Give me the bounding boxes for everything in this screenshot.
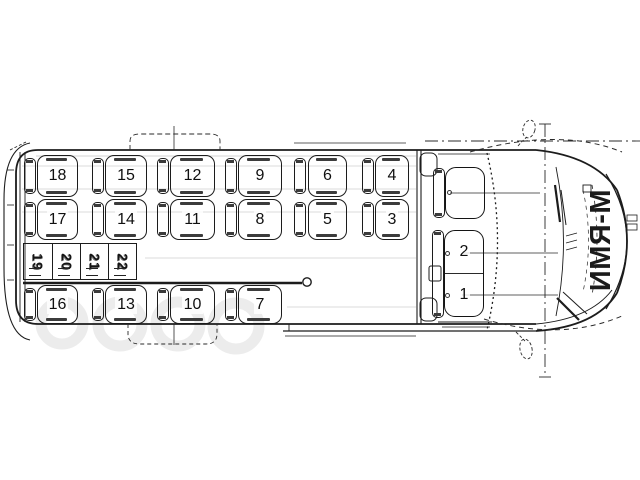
- seat-11-backrest: [157, 202, 169, 237]
- seat-1-marker: [445, 293, 450, 298]
- seat-15-backrest: [92, 158, 104, 194]
- brand-text: ИМЯ-М: [585, 189, 617, 291]
- vehicle-drawing: ИМЯ-М: [0, 0, 640, 480]
- seat-12-backrest: [157, 158, 169, 194]
- folding-seat-19: 19: [23, 243, 53, 280]
- fold-mechanism-icon: [29, 268, 41, 276]
- bus-seating-diagram: ИМЯ-М 18 15 12 9 6 4 17 14 11 8 5 3 19 2…: [0, 0, 640, 480]
- seat-12: 12: [170, 155, 215, 197]
- seat-13-backrest: [92, 288, 104, 321]
- seat-5-backrest: [294, 202, 306, 237]
- seat-8-backrest: [225, 202, 237, 237]
- seat-4: 4: [375, 155, 409, 197]
- folding-seat-22: 22: [108, 243, 137, 280]
- floor-lines: [22, 156, 416, 307]
- seat-16: 16: [37, 285, 78, 324]
- seat-3: 3: [375, 199, 409, 240]
- seat-5: 5: [308, 199, 347, 240]
- seat-1: 1: [445, 273, 483, 316]
- seat-2-marker: [445, 251, 450, 256]
- seat-18-backrest: [24, 158, 36, 194]
- cab-bench-backrest: [432, 230, 444, 318]
- seat-16-backrest: [24, 288, 36, 321]
- seat-14-backrest: [92, 202, 104, 237]
- fold-mechanism-icon: [114, 268, 126, 276]
- seat-4-backrest: [362, 158, 374, 194]
- seat-9: 9: [238, 155, 282, 197]
- seat-15: 15: [105, 155, 147, 197]
- driver-seat-marker: [447, 190, 452, 195]
- seat-18: 18: [37, 155, 78, 197]
- seat-8: 8: [238, 199, 282, 240]
- fold-mechanism-icon: [86, 268, 98, 276]
- seat-7-backrest: [225, 288, 237, 321]
- seat-17-backrest: [24, 202, 36, 237]
- seat-3-backrest: [362, 202, 374, 237]
- seat-2: 2: [445, 231, 483, 273]
- seat-10-backrest: [157, 288, 169, 321]
- seat-10: 10: [170, 285, 215, 324]
- seat-11: 11: [170, 199, 215, 240]
- fold-mechanism-icon: [58, 268, 70, 276]
- seat-6-backrest: [294, 158, 306, 194]
- wiper-icons: [555, 185, 587, 320]
- windshield-arc: [487, 153, 498, 330]
- seat-6: 6: [308, 155, 347, 197]
- folding-seat-21: 21: [80, 243, 109, 280]
- seat-13: 13: [105, 285, 147, 324]
- seat-7: 7: [238, 285, 282, 324]
- seat-17: 17: [37, 199, 78, 240]
- cab-bench-seat: 2 1: [444, 230, 484, 317]
- folding-seat-20: 20: [52, 243, 81, 280]
- seat-9-backrest: [225, 158, 237, 194]
- seat-14: 14: [105, 199, 147, 240]
- driver-seat-backrest: [433, 168, 445, 218]
